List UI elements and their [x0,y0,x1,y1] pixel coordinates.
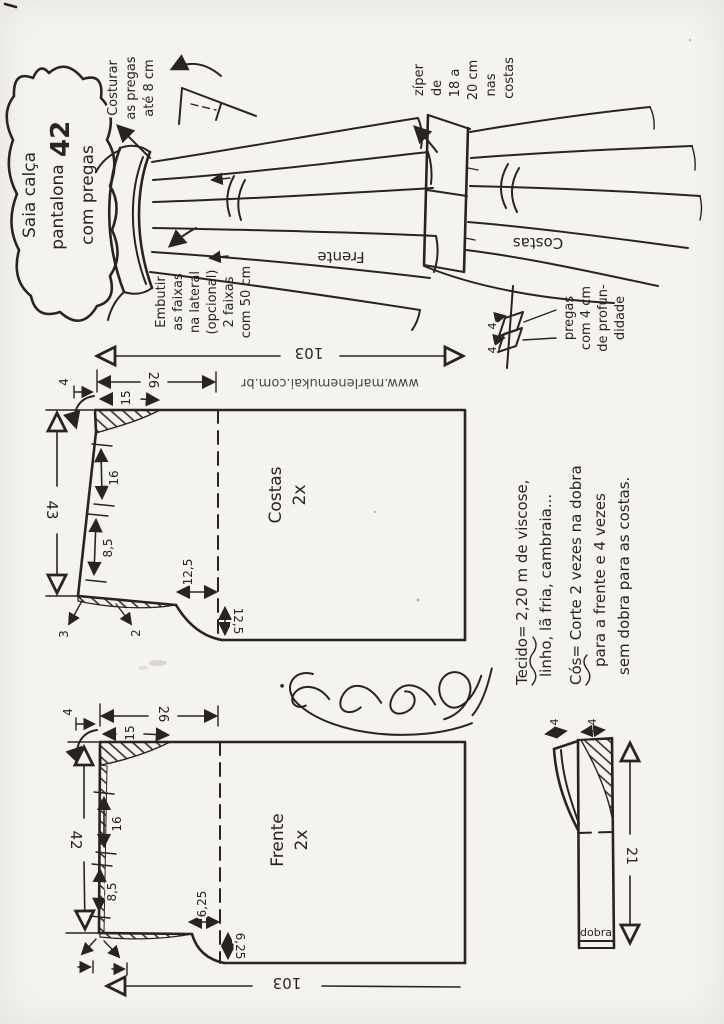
note-zipper-line-4: 20 cm [466,60,481,101]
flip-arrow-icon [77,730,97,763]
frente-piece-cut: 2x [292,830,312,851]
waistband-pattern-piece: 4 4 21 dobra [546,719,639,949]
fabric-notes: Tecido= 2,20 m de viscose, linho, lã fri… [513,465,633,686]
frente-crotch-w-dim: 6,25 [195,891,209,918]
note-zipper-line-6: costas [502,57,517,99]
curved-arrow-icon [172,64,221,76]
frente-dart-dim: 15 [123,725,137,740]
waistband-length-dim: 21 [623,847,639,865]
note-bands-line-5: 2 faixas [222,276,237,327]
costas-piece-cut: 2x [290,485,310,506]
pleat-depth-line-1: pregas [562,296,577,341]
title-line-1: Saia calça [20,152,40,238]
fabric-note-line-2: linho, lã fria, cambraia... [537,494,555,677]
note-sew-pleats-line-1: Costurar [106,59,121,115]
fabric-note-line-4: para a frente e 4 vezes [591,493,609,667]
note-bands-line-1: Embutir [154,276,169,328]
waistband-w1-dim: 4 [548,719,561,726]
pleat-depth-line-2: com 4 cm [579,286,594,350]
note-zipper-line-1: zíper [412,63,427,96]
waistband-w2-dim: 4 [586,719,599,726]
costas-dart-dim: 15 [119,390,133,405]
fabric-note-line-3: Cós= Corte 2 vezes na dobra [567,465,585,685]
title-line-2: pantalona [48,164,68,249]
costas-piece-label: Costas [266,466,286,523]
note-zipper-line-2: de [430,80,445,96]
pleat-depth-mark-1: 4 [486,323,499,330]
costas-sa-a: 3 [57,630,71,638]
back-sketch-label: Costas [513,234,564,252]
costas-sa-b: 2 [129,629,143,637]
fabric-note-line-1: Tecido= 2,20 m de viscose, [513,480,531,686]
note-bands-line-3: na lateral [188,271,203,333]
costas-mark1-dim: 16 [107,470,121,485]
frente-pattern-piece: 4 26 15 42 16 [61,704,465,992]
signature [277,654,491,742]
frente-length-dim: 42 [67,830,85,849]
frente-piece-label: Frente [268,813,288,867]
scanned-sewing-pattern-page: Saia calça pantalona 42 com pregas Costu… [0,0,724,1024]
front-sketch-label: Frente [317,248,364,266]
pleat-depth-mark-2: 4 [486,347,499,354]
note-sew-pleats: Costurar as pregas até 8 cm [106,56,256,124]
title-line-3: com pregas [78,145,98,245]
frente-fold-dim: 26 [155,706,170,723]
note-bands: Embutir as faixas na lateral (opcional) … [154,266,254,338]
note-bands-line-4: (opcional) [205,270,220,335]
frente-width-dim: 103 [273,974,302,992]
title-size: 42 [46,121,76,157]
watermark: www.marlenemukai.com.br [240,375,419,390]
title-bubble: Saia calça pantalona 42 com pregas [7,67,118,321]
pattern-drawing: Saia calça pantalona 42 com pregas Costu… [0,0,724,1024]
pleat-depth-line-3: de profun- [596,284,611,352]
note-sew-pleats-line-2: as pregas [124,56,139,119]
pleat-depth-line-4: didade [613,296,628,340]
note-sew-pleats-line-3: até 8 cm [142,59,157,116]
costas-pattern-piece: 103 www.marlenemukai.com.br 26 15 4 [43,344,465,640]
costas-crotch-d-dim: 12,5 [231,608,245,635]
back-garment-sketch: Costas [424,107,702,303]
fabric-note-line-5: sem dobra para as costas. [615,477,633,675]
pleat-mark-icon [212,178,230,180]
frente-mark2-dim: 8,5 [105,882,119,901]
costas-width-dim: 103 [295,344,324,362]
note-arrow-icon [118,126,150,158]
flip-arrow-icon [75,396,94,427]
waistband-fold-label: dobra [580,926,612,939]
frente-ext-dim: 4 [61,708,75,716]
pleat-fold-mini-sketch [172,64,256,124]
note-zipper-line-3: 18 a [448,69,463,98]
front-garment-sketch: Frente [96,118,438,330]
costas-fold-dim: 26 [145,372,160,389]
frente-crotch-d-dim: 6,25 [233,933,247,960]
pleat-depth-detail: 4 4 pregas com 4 cm de profun- didade [486,284,628,368]
note-bands-line-6: com 50 cm [239,266,254,338]
note-bands-line-2: as faixas [171,273,186,331]
frente-mark1-dim: 16 [110,816,124,831]
costas-ext-dim: 4 [57,378,71,386]
note-arrow-icon [170,228,196,246]
costas-crotch-w-dim: 12,5 [181,559,195,586]
costas-length-dim: 43 [43,500,61,519]
note-zipper-line-5: nas [484,73,499,96]
costas-mark2-dim: 8,5 [101,538,115,557]
